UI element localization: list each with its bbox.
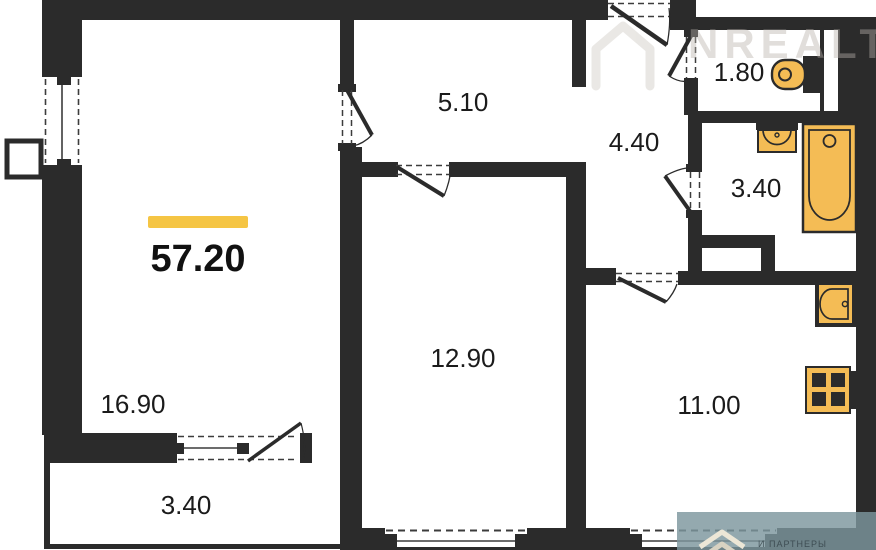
facade-ledge — [7, 141, 41, 177]
windows — [46, 76, 778, 547]
living-room-door — [343, 90, 373, 146]
total-area: 57.20 — [148, 216, 248, 280]
watermark-footer-text: И ПАРТНЕРЫ — [758, 539, 827, 549]
doors — [248, 4, 700, 462]
living-room-area-label: 16.90 — [100, 389, 165, 419]
kitchen-sink-icon — [815, 281, 856, 327]
kitchen-door — [616, 274, 678, 303]
window-openings — [42, 77, 777, 547]
watermark-footer: И ПАРТНЕРЫ — [677, 512, 876, 550]
watermark-house-icon — [596, 26, 650, 86]
bathtub-icon — [803, 124, 856, 232]
total-area-value: 57.20 — [150, 238, 245, 280]
bedroom-area-label: 12.90 — [430, 343, 495, 373]
floor-plan-svg: 5.10 4.40 1.80 3.40 16.90 12.90 11.00 3.… — [0, 0, 876, 550]
balcony-area-label: 3.40 — [161, 490, 212, 520]
bathroom-area-label: 3.40 — [731, 173, 782, 203]
sink-icon — [756, 121, 798, 152]
bedroom-door — [396, 166, 451, 197]
hallway-area-label: 5.10 — [438, 87, 489, 117]
floor-plan-page: 5.10 4.40 1.80 3.40 16.90 12.90 11.00 3.… — [0, 0, 876, 550]
room-labels: 5.10 4.40 1.80 3.40 16.90 12.90 11.00 3.… — [100, 57, 781, 520]
stove-icon — [806, 367, 856, 413]
bathroom-door — [665, 168, 700, 214]
kitchen-area-label: 11.00 — [677, 390, 740, 420]
total-area-accent-bar — [148, 216, 248, 228]
balcony-door — [248, 423, 305, 461]
balcony-window — [172, 437, 249, 460]
entry-hall-area-label: 4.40 — [609, 127, 660, 157]
watermark-brand-text: NREALT — [688, 20, 876, 67]
